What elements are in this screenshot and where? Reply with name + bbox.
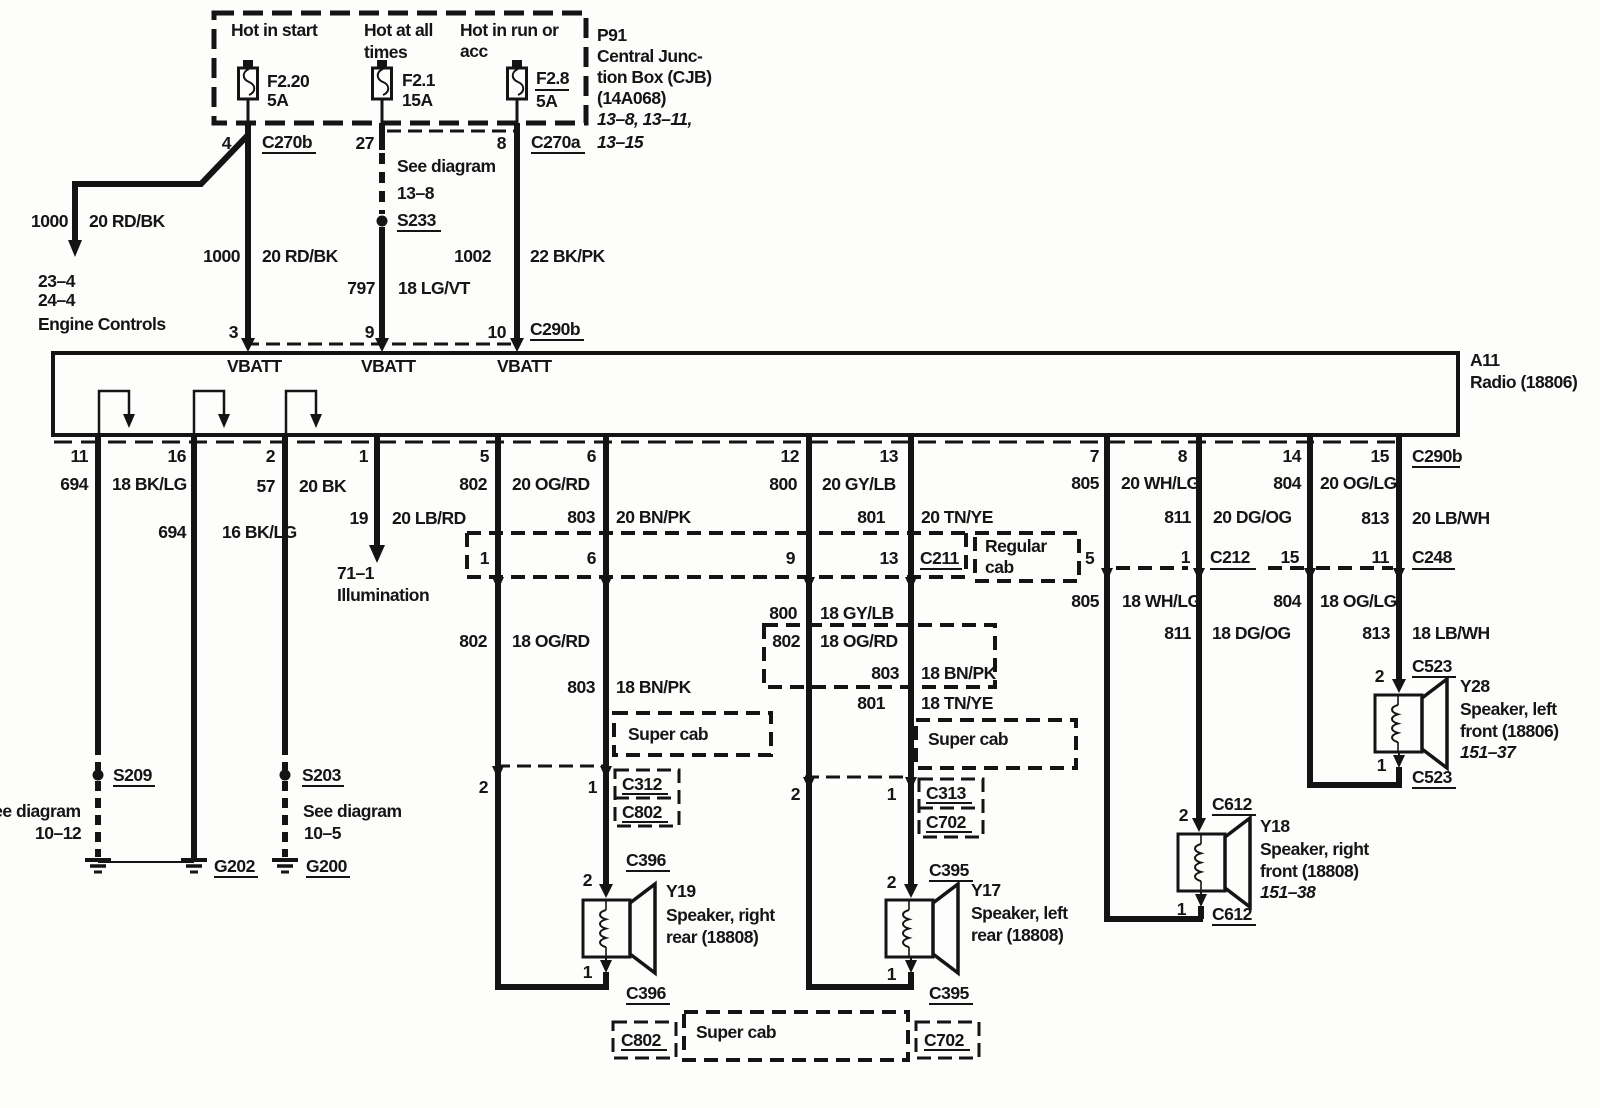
svg-text:(14A068): (14A068): [597, 88, 666, 108]
svg-text:800: 800: [769, 474, 797, 494]
svg-text:rear (18808): rear (18808): [666, 927, 758, 947]
svg-text:805: 805: [1071, 591, 1099, 611]
svg-text:12: 12: [781, 446, 800, 466]
svg-text:VBATT: VBATT: [497, 356, 552, 376]
svg-text:1: 1: [887, 964, 897, 984]
svg-text:804: 804: [1273, 591, 1301, 611]
svg-text:C270b: C270b: [262, 132, 312, 152]
svg-text:18 BK/LG: 18 BK/LG: [112, 474, 187, 494]
svg-text:Super cab: Super cab: [928, 729, 1008, 749]
svg-text:C702: C702: [926, 812, 967, 832]
svg-text:4: 4: [222, 133, 232, 153]
svg-text:813: 813: [1361, 508, 1389, 528]
svg-text:18 TN/YE: 18 TN/YE: [921, 693, 993, 713]
svg-text:5: 5: [480, 446, 490, 466]
svg-text:C211: C211: [920, 548, 960, 568]
svg-text:16: 16: [168, 446, 187, 466]
svg-text:1: 1: [887, 784, 897, 804]
svg-text:C523: C523: [1412, 656, 1453, 676]
svg-text:F2.1: F2.1: [402, 70, 436, 90]
svg-text:acc: acc: [460, 41, 488, 61]
svg-text:2: 2: [266, 446, 276, 466]
svg-text:23–4: 23–4: [38, 271, 76, 291]
svg-text:801: 801: [857, 693, 885, 713]
svg-text:1000: 1000: [203, 246, 241, 266]
svg-text:P91: P91: [597, 25, 627, 45]
svg-text:cab: cab: [985, 557, 1014, 577]
svg-text:20 LB/WH: 20 LB/WH: [1412, 508, 1490, 528]
svg-text:1002: 1002: [454, 246, 492, 266]
svg-text:18 BN/PK: 18 BN/PK: [921, 663, 997, 683]
svg-text:Y28: Y28: [1460, 676, 1490, 696]
svg-text:Engine Controls: Engine Controls: [38, 314, 166, 334]
svg-text:9: 9: [786, 548, 796, 568]
svg-text:8: 8: [497, 133, 507, 153]
svg-text:Hot at all: Hot at all: [364, 20, 433, 40]
svg-text:18 BN/PK: 18 BN/PK: [616, 677, 692, 697]
svg-text:803: 803: [567, 507, 595, 527]
svg-text:20 RD/BK: 20 RD/BK: [262, 246, 339, 266]
svg-text:813: 813: [1362, 623, 1390, 643]
svg-text:C702: C702: [924, 1030, 965, 1050]
svg-text:See diagram: See diagram: [0, 801, 81, 821]
svg-text:G200: G200: [306, 856, 348, 876]
svg-text:C313: C313: [926, 783, 967, 803]
svg-text:151–38: 151–38: [1260, 882, 1316, 902]
svg-text:1: 1: [588, 777, 598, 797]
svg-text:2: 2: [583, 870, 593, 890]
svg-text:C248: C248: [1412, 547, 1453, 567]
svg-text:800: 800: [769, 603, 797, 623]
svg-text:C395: C395: [929, 983, 970, 1003]
svg-text:2: 2: [479, 777, 489, 797]
svg-text:G202: G202: [214, 856, 256, 876]
svg-text:1: 1: [480, 548, 490, 568]
svg-text:7: 7: [1090, 446, 1099, 466]
svg-text:20 OG/LG: 20 OG/LG: [1320, 473, 1397, 493]
svg-text:VBATT: VBATT: [227, 356, 282, 376]
svg-text:Radio (18806): Radio (18806): [1470, 372, 1577, 392]
svg-text:6: 6: [587, 548, 597, 568]
svg-text:20 BN/PK: 20 BN/PK: [616, 507, 692, 527]
svg-text:18 WH/LG: 18 WH/LG: [1122, 591, 1201, 611]
svg-text:Y19: Y19: [666, 881, 696, 901]
svg-text:C802: C802: [622, 802, 663, 822]
svg-text:front (18806): front (18806): [1460, 721, 1559, 741]
svg-text:18 OG/LG: 18 OG/LG: [1320, 591, 1397, 611]
svg-text:rear (18808): rear (18808): [971, 925, 1063, 945]
svg-text:1: 1: [1177, 899, 1187, 919]
svg-text:24–4: 24–4: [38, 290, 76, 310]
svg-text:694: 694: [158, 522, 186, 542]
svg-text:Hot in start: Hot in start: [231, 20, 318, 40]
svg-text:Super cab: Super cab: [696, 1022, 776, 1042]
svg-text:times: times: [364, 42, 408, 62]
svg-text:15A: 15A: [402, 90, 433, 110]
svg-text:C523: C523: [1412, 767, 1453, 787]
svg-text:10–5: 10–5: [304, 823, 342, 843]
svg-text:15: 15: [1371, 446, 1390, 466]
svg-text:See diagram: See diagram: [303, 801, 402, 821]
svg-text:5A: 5A: [536, 91, 558, 111]
svg-text:Super cab: Super cab: [628, 724, 708, 744]
svg-text:805: 805: [1071, 473, 1099, 493]
svg-text:1: 1: [583, 962, 593, 982]
svg-text:802: 802: [459, 474, 487, 494]
svg-text:C290b: C290b: [1412, 446, 1462, 466]
svg-text:151–37: 151–37: [1460, 742, 1517, 762]
svg-text:18 LB/WH: 18 LB/WH: [1412, 623, 1490, 643]
svg-text:5A: 5A: [267, 90, 289, 110]
svg-text:802: 802: [459, 631, 487, 651]
svg-text:9: 9: [365, 322, 375, 342]
svg-text:C396: C396: [626, 850, 667, 870]
svg-text:F2.8: F2.8: [536, 68, 570, 88]
svg-text:803: 803: [871, 663, 899, 683]
svg-text:20 BK: 20 BK: [299, 476, 347, 496]
svg-text:Central Junc-: Central Junc-: [597, 46, 703, 66]
svg-text:2: 2: [1179, 805, 1189, 825]
svg-text:1: 1: [359, 446, 369, 466]
svg-text:Speaker, left: Speaker, left: [1460, 699, 1557, 719]
svg-text:1000: 1000: [31, 211, 69, 231]
svg-text:18 LG/VT: 18 LG/VT: [398, 278, 471, 298]
svg-text:C612: C612: [1212, 904, 1253, 924]
svg-text:11: 11: [1372, 547, 1390, 567]
svg-text:2: 2: [887, 872, 897, 892]
svg-text:20 GY/LB: 20 GY/LB: [822, 474, 896, 494]
svg-text:694: 694: [60, 474, 88, 494]
svg-text:801: 801: [857, 507, 885, 527]
svg-text:13: 13: [880, 548, 899, 568]
svg-text:13: 13: [880, 446, 899, 466]
svg-text:811: 811: [1164, 507, 1191, 527]
svg-text:C396: C396: [626, 983, 667, 1003]
svg-text:16 BK/LG: 16 BK/LG: [222, 522, 297, 542]
svg-text:Speaker, left: Speaker, left: [971, 903, 1068, 923]
svg-text:C212: C212: [1210, 547, 1251, 567]
svg-text:Y18: Y18: [1260, 816, 1290, 836]
svg-text:803: 803: [567, 677, 595, 697]
svg-text:C802: C802: [621, 1030, 662, 1050]
svg-text:19: 19: [350, 508, 369, 528]
svg-text:1: 1: [1377, 755, 1387, 775]
svg-text:20 LB/RD: 20 LB/RD: [392, 508, 466, 528]
svg-text:804: 804: [1273, 473, 1301, 493]
svg-text:802: 802: [772, 631, 800, 651]
svg-text:Illumination: Illumination: [337, 585, 429, 605]
svg-text:27: 27: [356, 133, 374, 153]
svg-text:front (18808): front (18808): [1260, 861, 1359, 881]
svg-text:14: 14: [1283, 446, 1302, 466]
svg-text:A11: A11: [1470, 350, 1500, 370]
svg-text:20 WH/LG: 20 WH/LG: [1121, 473, 1200, 493]
svg-text:13–8, 13–11,: 13–8, 13–11,: [597, 109, 692, 129]
svg-text:22 BK/PK: 22 BK/PK: [530, 246, 606, 266]
svg-text:C270a: C270a: [531, 132, 581, 152]
svg-text:811: 811: [1164, 623, 1191, 643]
svg-text:S209: S209: [113, 765, 153, 785]
svg-text:18 GY/LB: 18 GY/LB: [820, 603, 894, 623]
svg-text:VBATT: VBATT: [361, 356, 416, 376]
svg-text:tion Box (CJB): tion Box (CJB): [597, 67, 712, 87]
svg-text:Speaker, right: Speaker, right: [1260, 839, 1369, 859]
svg-text:C290b: C290b: [530, 319, 580, 339]
svg-text:3: 3: [229, 322, 239, 342]
svg-text:20 TN/YE: 20 TN/YE: [921, 507, 993, 527]
svg-text:S233: S233: [397, 210, 437, 230]
svg-text:Regular: Regular: [985, 536, 1047, 556]
svg-text:5: 5: [1085, 548, 1095, 568]
svg-text:C612: C612: [1212, 794, 1253, 814]
svg-text:C312: C312: [622, 774, 663, 794]
svg-text:71–1: 71–1: [337, 563, 375, 583]
svg-text:2: 2: [791, 784, 801, 804]
svg-text:See diagram: See diagram: [397, 156, 496, 176]
svg-text:11: 11: [71, 446, 89, 466]
svg-text:C395: C395: [929, 860, 970, 880]
svg-text:18 DG/OG: 18 DG/OG: [1212, 623, 1291, 643]
svg-text:2: 2: [1375, 666, 1385, 686]
svg-text:57: 57: [257, 476, 275, 496]
svg-text:18 OG/RD: 18 OG/RD: [820, 631, 898, 651]
svg-text:18 OG/RD: 18 OG/RD: [512, 631, 590, 651]
svg-text:10–12: 10–12: [35, 823, 82, 843]
svg-text:Speaker, right: Speaker, right: [666, 905, 775, 925]
svg-text:S203: S203: [302, 765, 342, 785]
svg-text:10: 10: [488, 322, 507, 342]
svg-text:797: 797: [347, 278, 375, 298]
svg-text:20 OG/RD: 20 OG/RD: [512, 474, 590, 494]
svg-text:Hot in run or: Hot in run or: [460, 20, 559, 40]
svg-text:1: 1: [1181, 547, 1191, 567]
svg-text:20 DG/OG: 20 DG/OG: [1213, 507, 1292, 527]
svg-text:13–15: 13–15: [597, 132, 644, 152]
svg-text:8: 8: [1178, 446, 1188, 466]
svg-text:15: 15: [1281, 547, 1300, 567]
svg-text:Y17: Y17: [971, 880, 1001, 900]
svg-text:20 RD/BK: 20 RD/BK: [89, 211, 166, 231]
svg-text:F2.20: F2.20: [267, 71, 310, 91]
svg-text:6: 6: [587, 446, 597, 466]
svg-text:13–8: 13–8: [397, 183, 435, 203]
